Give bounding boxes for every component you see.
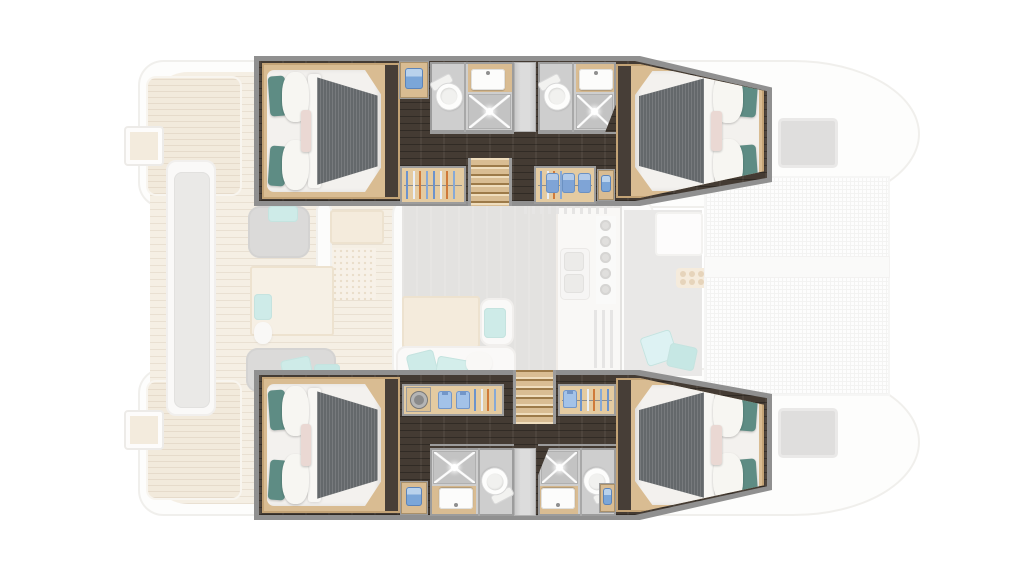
washbasin-icon bbox=[439, 488, 473, 509]
duvet bbox=[317, 391, 377, 498]
chart-desk bbox=[330, 210, 384, 244]
transom-bench bbox=[166, 160, 216, 416]
deck-hatch-port bbox=[778, 118, 838, 168]
wardrobe-starboard-fwd bbox=[558, 384, 616, 416]
cabin-entry-floor bbox=[385, 379, 398, 511]
cabin-entry-floor bbox=[618, 66, 631, 196]
teal-cushion bbox=[484, 308, 506, 338]
vanity-basin bbox=[400, 62, 428, 98]
cabin-port-aft bbox=[262, 63, 400, 199]
deck-hatch-starboard bbox=[778, 408, 838, 458]
washbasin-counter bbox=[468, 64, 512, 92]
port-hull-interior bbox=[254, 56, 772, 206]
stove bbox=[596, 216, 616, 304]
hanging-clothes bbox=[406, 171, 460, 199]
vent-grille bbox=[594, 310, 616, 368]
cabin-entry-floor bbox=[618, 380, 631, 510]
shower-icon bbox=[541, 451, 578, 484]
vanity-basin bbox=[598, 170, 614, 200]
duvet bbox=[639, 392, 705, 498]
hanging-clothes bbox=[580, 389, 612, 411]
teal-cushion bbox=[268, 206, 298, 222]
shower-icon bbox=[576, 94, 613, 129]
boarding-step-port bbox=[124, 126, 164, 166]
wall bbox=[430, 132, 514, 134]
pillow-blush bbox=[711, 111, 722, 152]
shirt-icon bbox=[563, 390, 577, 408]
forward-crossbeam bbox=[704, 256, 890, 278]
wardrobe-port-aft bbox=[400, 166, 466, 204]
bench-cushion bbox=[174, 172, 210, 408]
forward-sunpad bbox=[655, 212, 703, 256]
vanity-basin bbox=[401, 482, 427, 514]
dining-table bbox=[402, 296, 480, 348]
wall bbox=[538, 444, 616, 446]
washbasin-icon bbox=[541, 488, 575, 509]
wall bbox=[538, 132, 616, 134]
cabin-entry-floor bbox=[385, 65, 398, 197]
bow-trampoline bbox=[704, 176, 890, 396]
bathroom-starboard-aft bbox=[430, 448, 514, 516]
galley-sink bbox=[560, 248, 590, 300]
shirt-icon bbox=[438, 391, 452, 409]
duvet bbox=[317, 77, 377, 184]
shower-icon bbox=[468, 94, 511, 129]
pillow-blush bbox=[711, 425, 722, 466]
pillow-blush bbox=[301, 424, 311, 465]
vanity-basin bbox=[600, 484, 615, 512]
white-cushion bbox=[254, 322, 272, 344]
washbasin-counter bbox=[576, 64, 614, 92]
washbasin-icon bbox=[579, 69, 613, 90]
wardrobe-port-fwd bbox=[534, 166, 596, 204]
companionway-stairs bbox=[468, 158, 512, 206]
galley-handles bbox=[524, 206, 612, 214]
teal-cushion bbox=[254, 294, 272, 320]
double-bed bbox=[635, 71, 759, 191]
washer-icon bbox=[406, 387, 431, 412]
folded-clothes bbox=[546, 173, 591, 193]
washbasin-counter bbox=[540, 486, 578, 514]
washbasin-icon bbox=[471, 69, 505, 90]
shirt-icon bbox=[456, 391, 470, 409]
double-bed bbox=[267, 70, 381, 192]
dotted-mat bbox=[332, 248, 376, 300]
washbasin-counter bbox=[432, 486, 476, 514]
bathroom-port-aft bbox=[430, 62, 514, 132]
utility-locker bbox=[402, 384, 504, 416]
cabin-starboard-aft bbox=[262, 377, 400, 513]
companionway-landing bbox=[514, 62, 536, 132]
hanging-clothes bbox=[474, 389, 500, 411]
wall bbox=[430, 444, 514, 446]
bathroom-port-fwd bbox=[538, 62, 616, 132]
duvet bbox=[639, 78, 705, 184]
starboard-hull-interior bbox=[254, 370, 772, 520]
companionway-stairs bbox=[513, 370, 556, 424]
double-bed bbox=[635, 385, 759, 505]
catamaran-floorplan bbox=[0, 0, 1024, 576]
boarding-step-starboard bbox=[124, 410, 164, 450]
double-bed bbox=[267, 384, 381, 506]
companionway-landing bbox=[514, 448, 536, 516]
shower-icon bbox=[433, 451, 476, 484]
pillow-blush bbox=[301, 110, 311, 151]
